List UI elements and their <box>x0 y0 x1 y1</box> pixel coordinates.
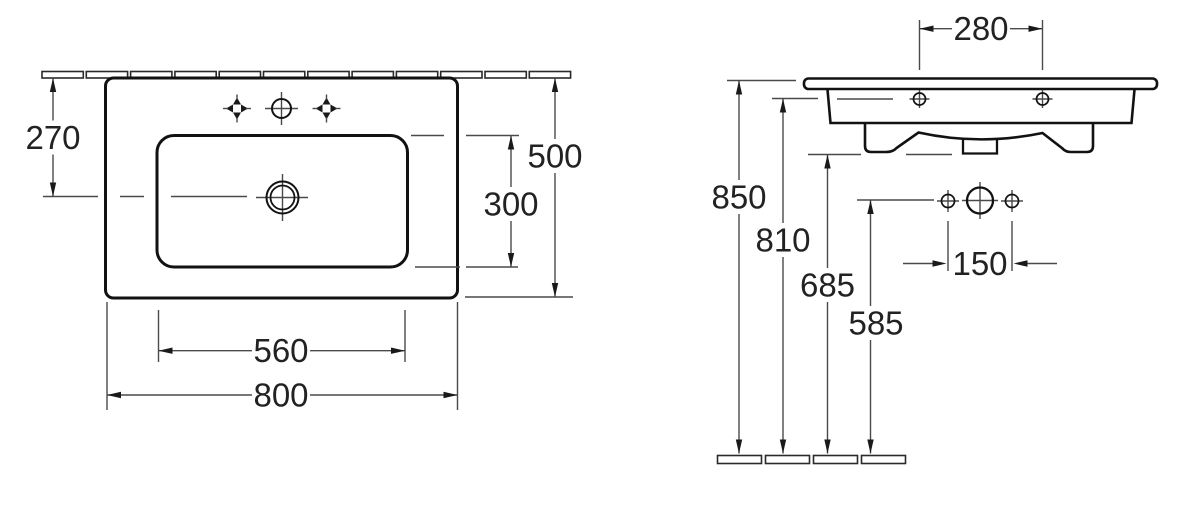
drain-stub <box>963 139 997 154</box>
washbasin-dimension-drawing: 270 500 300 <box>0 0 1200 512</box>
tap-hole-punch-mark-left <box>223 95 251 123</box>
floor-tile-strip <box>718 456 906 464</box>
dimension-150: 150 <box>903 221 1057 282</box>
wall-tile <box>485 72 526 79</box>
dimension-300: 300 <box>411 136 540 268</box>
tap-mounting-hole-left <box>910 90 930 108</box>
wall-tile <box>529 72 570 79</box>
tap-mounting-hole-right <box>1033 90 1053 108</box>
dim-label-270: 270 <box>25 119 80 156</box>
floor-tile <box>814 456 858 464</box>
floor-tile <box>718 456 762 464</box>
dimension-560: 560 <box>159 310 406 369</box>
dimension-270: 270 <box>24 78 247 197</box>
tap-hole-symbol-center <box>265 92 298 125</box>
dim-label-560: 560 <box>253 332 308 369</box>
front-view: 280 850 810 685 <box>710 10 1157 463</box>
fixing-hole-group <box>937 182 1023 219</box>
dim-label-300: 300 <box>483 186 538 223</box>
dim-label-585: 585 <box>848 305 903 342</box>
dim-label-685: 685 <box>800 267 855 304</box>
dim-label-280: 280 <box>953 10 1008 47</box>
basin-underside-profile <box>865 123 1093 152</box>
technical-drawing-canvas: 270 500 300 <box>0 0 1200 512</box>
dim-label-810: 810 <box>755 222 810 259</box>
dim-label-500: 500 <box>527 138 582 175</box>
dimension-280: 280 <box>920 10 1043 70</box>
dim-label-800: 800 <box>253 377 308 414</box>
basin-top-slab <box>804 79 1157 90</box>
top-view: 270 500 300 <box>24 72 584 414</box>
dim-label-850: 850 <box>711 179 766 216</box>
wall-tile <box>42 72 83 79</box>
floor-tile <box>766 456 810 464</box>
drain-hole-symbol <box>256 174 308 221</box>
tap-hole-punch-mark-right <box>313 95 341 123</box>
floor-tile <box>862 456 906 464</box>
dimension-585: 585 <box>847 200 934 454</box>
basin-body <box>828 90 1135 124</box>
dim-label-150: 150 <box>952 245 1007 282</box>
